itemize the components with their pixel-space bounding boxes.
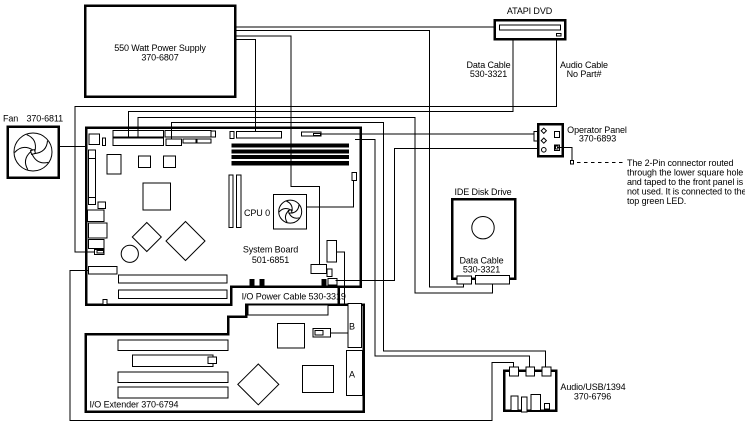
svg-text:ATAPI DVD: ATAPI DVD: [507, 6, 553, 16]
svg-text:not used. It is connected to t: not used. It is connected to the: [627, 187, 745, 197]
svg-text:I/O Power Cable 530-3319: I/O Power Cable 530-3319: [242, 292, 346, 302]
svg-text:I/O Extender 370-6794: I/O Extender 370-6794: [90, 400, 179, 410]
svg-text:CPU 0: CPU 0: [244, 208, 270, 218]
svg-text:370-6893: 370-6893: [579, 133, 616, 143]
svg-text:370-6807: 370-6807: [141, 53, 178, 63]
svg-text:370-6796: 370-6796: [574, 391, 611, 401]
svg-text:The 2-Pin connector routed: The 2-Pin connector routed: [627, 158, 734, 168]
svg-text:B: B: [349, 322, 355, 332]
svg-text:through the lower square hole: through the lower square hole: [627, 168, 743, 178]
svg-text:A: A: [349, 370, 355, 380]
svg-text:and taped to the front panel i: and taped to the front panel is: [627, 177, 744, 187]
svg-text:System Board: System Board: [243, 245, 298, 255]
svg-text:Fan: Fan: [3, 114, 18, 124]
svg-text:No Part#: No Part#: [567, 69, 602, 79]
svg-text:530-3321: 530-3321: [470, 69, 507, 79]
svg-text:top green LED.: top green LED.: [627, 196, 686, 206]
svg-text:IDE Disk Drive: IDE Disk Drive: [454, 187, 511, 197]
svg-text:370-6811: 370-6811: [27, 114, 64, 124]
svg-text:501-6851: 501-6851: [252, 255, 289, 265]
svg-text:Audio/USB/1394: Audio/USB/1394: [560, 382, 625, 392]
svg-text:550 Watt Power Supply: 550 Watt Power Supply: [114, 43, 206, 53]
svg-text:530-3321: 530-3321: [463, 265, 500, 275]
